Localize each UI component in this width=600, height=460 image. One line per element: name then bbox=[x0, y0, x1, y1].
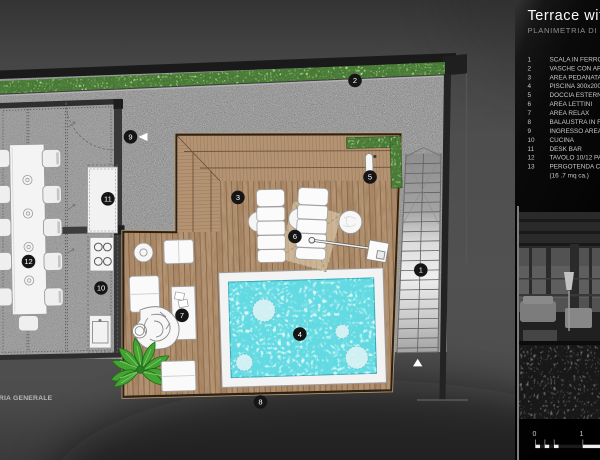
svg-text:TAVOLO 10/12 PAX: TAVOLO 10/12 PAX bbox=[550, 155, 600, 162]
svg-text:8: 8 bbox=[528, 119, 532, 126]
svg-text:4: 4 bbox=[298, 330, 302, 339]
svg-text:3: 3 bbox=[236, 193, 240, 202]
svg-text:3: 3 bbox=[528, 74, 532, 81]
svg-text:6: 6 bbox=[528, 101, 532, 108]
svg-text:5: 5 bbox=[528, 92, 532, 99]
svg-text:11: 11 bbox=[104, 195, 112, 204]
svg-text:1: 1 bbox=[580, 431, 584, 438]
svg-text:12: 12 bbox=[528, 155, 536, 162]
svg-text:BALAUSTRA IN FERRO: BALAUSTRA IN FERRO bbox=[550, 119, 600, 126]
svg-text:PLANIMETRIA GENERALE: PLANIMETRIA GENERALE bbox=[0, 395, 53, 402]
svg-text:PISCINA 300x200 CM: PISCINA 300x200 CM bbox=[550, 83, 600, 90]
svg-text:7: 7 bbox=[528, 110, 532, 117]
svg-text:CUCINA: CUCINA bbox=[550, 137, 575, 144]
svg-text:10: 10 bbox=[528, 137, 536, 144]
svg-text:1: 1 bbox=[528, 56, 532, 63]
svg-text:2: 2 bbox=[528, 65, 532, 72]
svg-text:AREA LETTINI: AREA LETTINI bbox=[550, 101, 593, 108]
svg-text:1: 1 bbox=[419, 266, 423, 275]
svg-text:(16 .7 mq ca.): (16 .7 mq ca.) bbox=[550, 173, 589, 180]
svg-text:4: 4 bbox=[528, 83, 532, 90]
svg-text:6: 6 bbox=[293, 232, 297, 241]
svg-text:0: 0 bbox=[533, 431, 537, 438]
svg-text:13: 13 bbox=[528, 164, 536, 171]
svg-text:12: 12 bbox=[24, 257, 32, 266]
svg-text:VASCHE CON AROMATICHE: VASCHE CON AROMATICHE bbox=[550, 65, 600, 72]
svg-text:5: 5 bbox=[368, 173, 372, 182]
svg-text:10: 10 bbox=[97, 284, 105, 293]
svg-text:11: 11 bbox=[528, 146, 535, 153]
svg-text:9: 9 bbox=[128, 133, 132, 142]
svg-text:DESK BAR: DESK BAR bbox=[550, 146, 583, 153]
svg-text:7: 7 bbox=[180, 311, 184, 320]
svg-text:PLANIMETRIA DI PROGETTO: PLANIMETRIA DI PROGETTO bbox=[528, 26, 600, 35]
svg-text:INGRESSO AREA TERRAZZA: INGRESSO AREA TERRAZZA bbox=[550, 128, 600, 135]
svg-text:AREA PEDANATA IN LEGNO: AREA PEDANATA IN LEGNO bbox=[550, 74, 600, 81]
svg-text:2: 2 bbox=[353, 76, 357, 85]
svg-text:9: 9 bbox=[528, 128, 532, 135]
svg-text:SCALA IN FERRO E LEGNO: SCALA IN FERRO E LEGNO bbox=[550, 56, 600, 63]
svg-text:DOCCIA ESTERNA: DOCCIA ESTERNA bbox=[550, 92, 600, 99]
svg-text:PERGOTENDA COPERTURA: PERGOTENDA COPERTURA bbox=[550, 164, 600, 171]
svg-text:Terrace with pool: Terrace with pool bbox=[528, 8, 600, 24]
svg-text:AREA RELAX: AREA RELAX bbox=[550, 110, 591, 117]
svg-text:8: 8 bbox=[258, 398, 262, 407]
